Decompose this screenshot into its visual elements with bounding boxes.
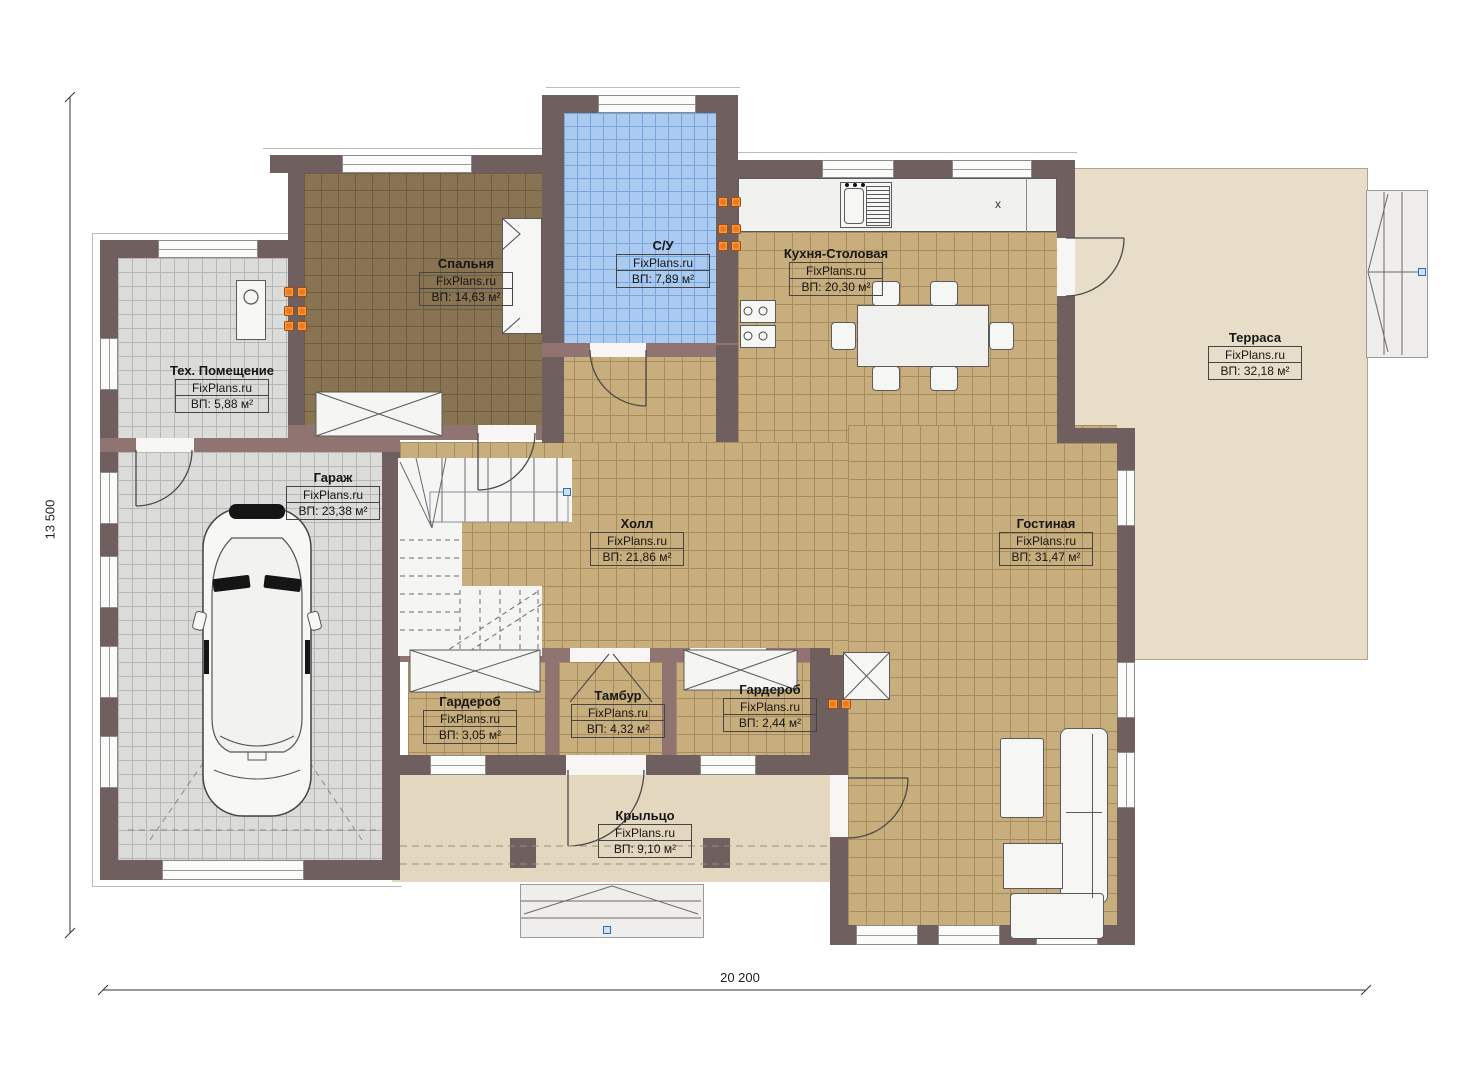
stairs-upper-flight xyxy=(398,458,572,522)
drying-rack xyxy=(866,186,890,226)
radiator-marker xyxy=(828,699,851,709)
room-label-hall: Холл FixPlans.ru ВП: 21,86 м² xyxy=(590,516,684,566)
overhang-line xyxy=(546,87,740,88)
bathroom-door-opening xyxy=(590,343,646,357)
room-name: Гостиная xyxy=(1017,516,1076,531)
porch-column xyxy=(510,838,536,868)
kitchen-counter xyxy=(738,178,1057,232)
watermark-link[interactable]: FixPlans.ru xyxy=(572,705,664,721)
wall xyxy=(716,345,738,442)
tech-garage-opening xyxy=(136,438,194,452)
sofa-chaise xyxy=(1003,843,1063,889)
room-area: ВП: 21,86 м² xyxy=(591,549,683,565)
room-name: Тамбур xyxy=(594,688,641,703)
chair xyxy=(872,366,900,391)
sofa-seat xyxy=(1010,893,1104,939)
room-label-living: Гостиная FixPlans.ru ВП: 31,47 м² xyxy=(999,516,1093,566)
porch-steps xyxy=(520,884,704,938)
coffee-table xyxy=(1000,738,1044,818)
room-area: ВП: 4,32 м² xyxy=(572,721,664,737)
chair xyxy=(930,281,958,306)
corridor-floor xyxy=(556,343,716,455)
room-label-porch: Крыльцо FixPlans.ru ВП: 9,10 м² xyxy=(598,808,692,858)
living-window xyxy=(1117,470,1135,526)
bedroom-door-opening xyxy=(478,425,536,440)
watermark-link[interactable]: FixPlans.ru xyxy=(599,825,691,841)
overhang-line xyxy=(263,148,544,149)
room-area: ВП: 23,38 м² xyxy=(287,503,379,519)
room-label-wardrobe-left: Гардероб FixPlans.ru ВП: 3,05 м² xyxy=(423,694,517,744)
room-name: Спальня xyxy=(438,256,494,271)
porch-column xyxy=(703,838,730,868)
bathroom-window xyxy=(598,95,696,113)
room-area: ВП: 7,89 м² xyxy=(617,271,709,287)
reference-marker xyxy=(563,488,571,496)
left-wall-window xyxy=(100,338,118,390)
radiator-marker xyxy=(284,321,307,331)
overhang-line xyxy=(92,886,402,887)
tech-window xyxy=(158,240,258,258)
room-area: ВП: 5,88 м² xyxy=(176,396,268,412)
watermark-link[interactable]: FixPlans.ru xyxy=(1209,347,1301,363)
room-area: ВП: 31,47 м² xyxy=(1000,549,1092,565)
wall xyxy=(1057,178,1075,238)
chair xyxy=(831,322,856,350)
room-name: Гардероб xyxy=(439,694,500,709)
counter-x-mark: x xyxy=(995,197,1001,211)
room-name: Крыльцо xyxy=(615,808,674,823)
left-wall-window xyxy=(100,736,118,788)
wardrobe-right-opening xyxy=(690,648,766,662)
left-wall-window xyxy=(100,472,118,524)
room-label-tambour: Тамбур FixPlans.ru ВП: 4,32 м² xyxy=(571,688,665,738)
living-porch-opening xyxy=(830,775,848,837)
living-window xyxy=(938,925,1000,945)
room-name: Холл xyxy=(621,516,654,531)
dimension-bottom-label: 20 200 xyxy=(700,970,780,985)
wall xyxy=(1057,428,1135,443)
living-window xyxy=(1117,662,1135,718)
terrace-door-opening xyxy=(1057,238,1075,296)
watermark-link[interactable]: FixPlans.ru xyxy=(617,255,709,271)
bedroom-window xyxy=(342,155,472,173)
room-name: С/У xyxy=(652,238,673,253)
chair xyxy=(989,322,1014,350)
radiator-marker xyxy=(718,241,741,251)
kitchen-window xyxy=(822,160,894,178)
reference-marker xyxy=(603,926,611,934)
wardrobe-window xyxy=(700,755,756,775)
radiator-marker xyxy=(284,287,307,297)
living-window xyxy=(1117,752,1135,808)
watermark-link[interactable]: FixPlans.ru xyxy=(424,711,516,727)
reference-marker xyxy=(1418,268,1426,276)
counter-divider xyxy=(1026,178,1027,232)
bathroom-floor xyxy=(564,113,716,343)
tambour-opening xyxy=(570,648,650,662)
room-name: Кухня-Столовая xyxy=(784,246,888,261)
room-label-kitchen: Кухня-Столовая FixPlans.ru ВП: 20,30 м² xyxy=(784,246,888,296)
front-door-opening xyxy=(566,755,646,775)
watermark-link[interactable]: FixPlans.ru xyxy=(287,487,379,503)
left-wall-window xyxy=(100,556,118,608)
overhang-line xyxy=(92,233,93,886)
sofa-back-line xyxy=(1092,734,1093,898)
radiator-marker xyxy=(284,306,307,316)
overhang-line xyxy=(737,152,1077,153)
room-name: Терраса xyxy=(1229,330,1281,345)
dimension-left-label: 13 500 xyxy=(42,500,57,540)
radiator-marker xyxy=(718,224,741,234)
room-label-bedroom: Спальня FixPlans.ru ВП: 14,63 м² xyxy=(419,256,513,306)
garage-door xyxy=(162,860,304,880)
room-area: ВП: 20,30 м² xyxy=(790,279,882,295)
watermark-link[interactable]: FixPlans.ru xyxy=(1000,533,1092,549)
boiler xyxy=(236,280,266,340)
oven-unit xyxy=(740,325,776,348)
sofa-back xyxy=(1060,728,1108,904)
watermark-link[interactable]: FixPlans.ru xyxy=(790,263,882,279)
room-label-garage: Гараж FixPlans.ru ВП: 23,38 м² xyxy=(286,470,380,520)
radiator-marker xyxy=(718,197,741,207)
room-area: ВП: 32,18 м² xyxy=(1209,363,1301,379)
sink-bowl xyxy=(844,188,864,224)
room-name: Тех. Помещение xyxy=(170,363,274,378)
fireplace xyxy=(843,652,890,700)
stairs-lower-flight xyxy=(440,586,542,656)
watermark-link[interactable]: FixPlans.ru xyxy=(420,273,512,289)
room-area: ВП: 3,05 м² xyxy=(424,727,516,743)
room-label-tech: Тех. Помещение FixPlans.ru ВП: 5,88 м² xyxy=(170,363,274,413)
watermark-link[interactable]: FixPlans.ru xyxy=(724,699,816,715)
watermark-link[interactable]: FixPlans.ru xyxy=(591,533,683,549)
sofa-cushion-line xyxy=(1066,812,1102,813)
kitchen-window xyxy=(952,160,1032,178)
dining-table xyxy=(857,305,989,367)
watermark-link[interactable]: FixPlans.ru xyxy=(176,380,268,396)
wall xyxy=(1057,296,1075,442)
room-label-terrace: Терраса FixPlans.ru ВП: 32,18 м² xyxy=(1208,330,1302,380)
room-area: ВП: 14,63 м² xyxy=(420,289,512,305)
room-name: Гараж xyxy=(314,470,353,485)
room-label-bathroom: С/У FixPlans.ru ВП: 7,89 м² xyxy=(616,238,710,288)
wall xyxy=(542,95,564,443)
room-area: ВП: 2,44 м² xyxy=(724,715,816,731)
chair xyxy=(930,366,958,391)
room-label-wardrobe-right: Гардероб FixPlans.ru ВП: 2,44 м² xyxy=(723,682,817,732)
living-window xyxy=(856,925,918,945)
overhang-line xyxy=(92,233,290,234)
left-wall-window xyxy=(100,646,118,698)
floor-plan-canvas: x xyxy=(0,0,1474,1080)
oven-unit xyxy=(740,300,776,323)
wardrobe-window xyxy=(430,755,486,775)
room-name: Гардероб xyxy=(739,682,800,697)
room-area: ВП: 9,10 м² xyxy=(599,841,691,857)
